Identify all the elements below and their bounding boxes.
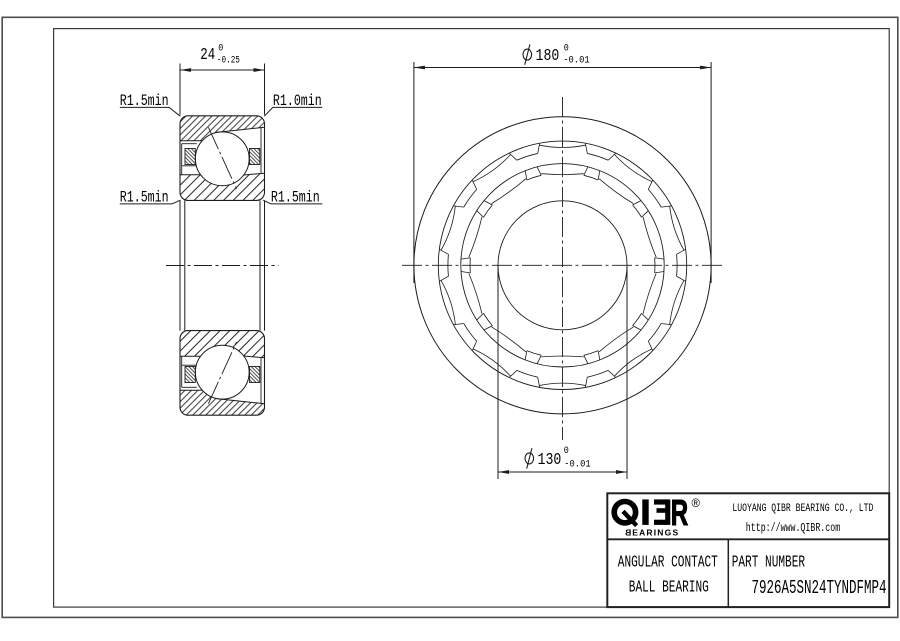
svg-text:PART NUMBER: PART NUMBER [732,554,806,573]
svg-text:180: 180 [536,46,560,66]
svg-text:0: 0 [564,42,569,54]
svg-text:LUOYANG QIBR BEARING CO., LTD: LUOYANG QIBR BEARING CO., LTD [732,502,873,515]
svg-text:R1.5min: R1.5min [271,189,320,207]
svg-text:-0.01: -0.01 [563,54,590,66]
svg-text:-0.01: -0.01 [564,458,591,470]
svg-text:-0.25: -0.25 [217,53,240,66]
svg-text:0: 0 [218,41,223,53]
svg-text:BALL BEARING: BALL BEARING [629,579,709,598]
svg-text:EARINGS: EARINGS [632,527,679,537]
svg-text:B: B [625,527,631,537]
svg-text:®: ® [692,498,701,510]
svg-text:7926A5SN24TYNDFMP4: 7926A5SN24TYNDFMP4 [752,577,887,598]
svg-text:R1.5min: R1.5min [120,189,169,207]
svg-text:http://www.QIBR.com: http://www.QIBR.com [746,522,840,536]
svg-text:0: 0 [564,444,569,456]
svg-text:ANGULAR CONTACT: ANGULAR CONTACT [618,554,718,573]
svg-text:24: 24 [200,47,215,65]
svg-text:130: 130 [538,450,562,470]
